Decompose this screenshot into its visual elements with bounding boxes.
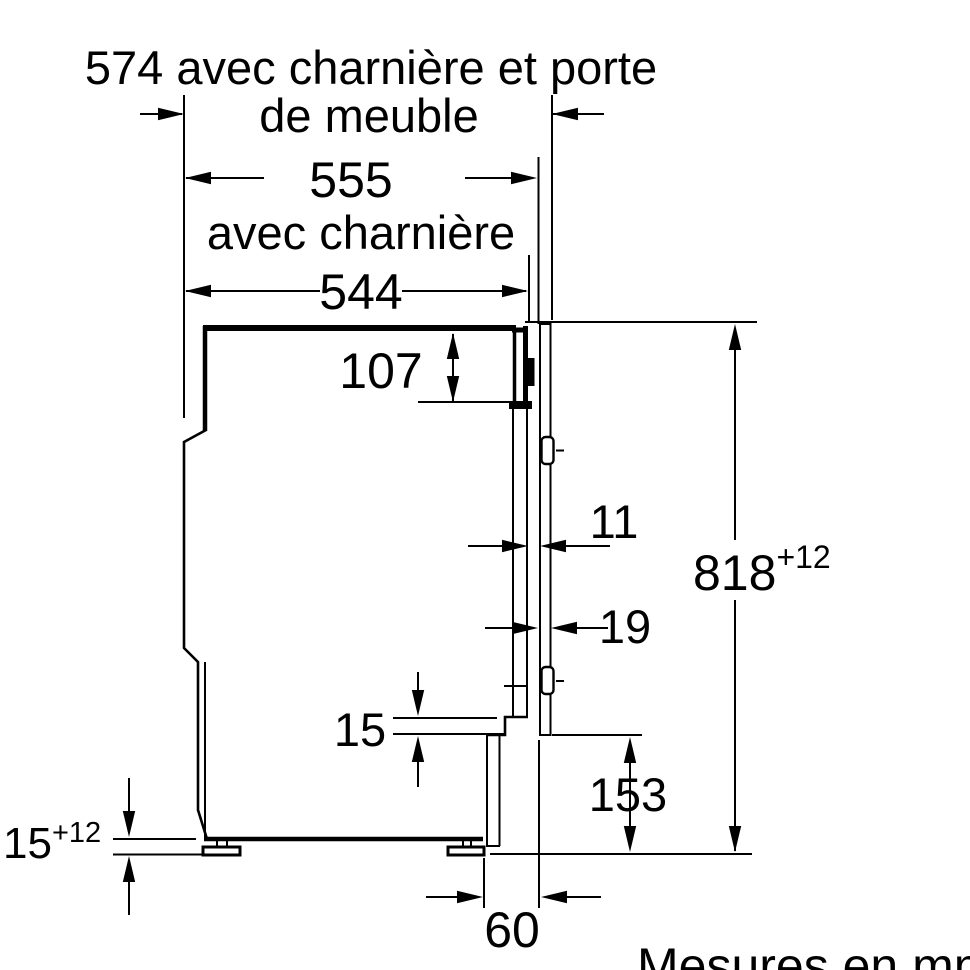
appliance-left-contour	[184, 430, 207, 839]
dimension-544-appliance-depth: 544	[186, 255, 529, 322]
dimension-15-plinth-gap: 15	[334, 672, 505, 787]
dimension-11-value: 11	[590, 495, 639, 548]
arrowhead	[457, 891, 483, 903]
dimension-818-value: 818+12	[693, 539, 831, 601]
dimension-15-value: 15	[334, 703, 386, 756]
door-hinge-pin	[527, 358, 535, 386]
appliance-front-panel	[486, 326, 535, 846]
dimension-544-value: 544	[319, 264, 402, 320]
arrowhead	[512, 622, 538, 634]
arrowhead	[540, 540, 566, 552]
dimension-15-12-tolerance: +12	[52, 817, 101, 849]
left-foot	[203, 841, 240, 855]
dimension-153-value: 153	[589, 768, 667, 821]
arrowhead	[624, 737, 636, 763]
arrowhead	[447, 333, 459, 359]
arrowhead	[123, 856, 135, 882]
arrowhead	[123, 811, 135, 837]
door-hinge-bottom	[542, 667, 565, 694]
front-step	[486, 717, 528, 735]
dimension-574-label-line1: 574 avec charnière et porte	[85, 41, 657, 94]
dimension-15-12-value: 15+12	[3, 817, 101, 868]
arrowhead	[552, 108, 578, 120]
dimension-555-value: 555	[309, 152, 392, 208]
dimension-107-top-offset: 107	[339, 334, 511, 402]
arrowhead	[412, 736, 424, 762]
dimension-818-number: 818	[693, 545, 776, 601]
door-hinge-top	[542, 437, 565, 464]
arrowhead	[185, 172, 211, 184]
furniture-door-panel	[539, 322, 564, 735]
arrowhead	[185, 285, 211, 297]
dimension-818-tolerance: +12	[776, 539, 830, 575]
arrowhead	[412, 690, 424, 716]
installation-dimension-diagram: 574 avec charnière et porte de meuble 55…	[0, 0, 970, 970]
dimension-19-value: 19	[599, 600, 651, 653]
dimension-555-label: avec charnière	[207, 206, 515, 259]
dimension-153-door-clearance: 153	[552, 735, 667, 845]
unit-note: Mesures en mm	[637, 938, 970, 970]
right-foot-pad	[448, 847, 484, 855]
arrowhead	[447, 376, 459, 402]
hinge-bracket	[542, 667, 554, 694]
dimension-60-value: 60	[484, 902, 540, 958]
arrowhead	[158, 108, 184, 120]
arrowhead	[551, 622, 577, 634]
arrowhead	[624, 826, 636, 852]
arrowhead	[541, 891, 567, 903]
arrowhead	[729, 324, 741, 350]
dimension-15-12-number: 15	[3, 819, 52, 868]
appliance-body	[184, 326, 535, 855]
dimension-574-label-line2: de meuble	[259, 89, 479, 142]
left-foot-pad	[203, 847, 240, 855]
arrowhead	[511, 172, 537, 184]
right-foot	[448, 841, 484, 855]
hinge-bracket	[542, 437, 554, 464]
dimension-107-value: 107	[339, 343, 422, 399]
dimension-818-niche-height: 818+12	[525, 322, 831, 851]
arrowhead	[729, 826, 741, 852]
dimension-15-12-feet-height: 15+12	[3, 778, 203, 915]
arrowhead	[502, 540, 528, 552]
dimension-11-front-gap: 11	[468, 495, 638, 548]
arrowhead	[502, 285, 528, 297]
